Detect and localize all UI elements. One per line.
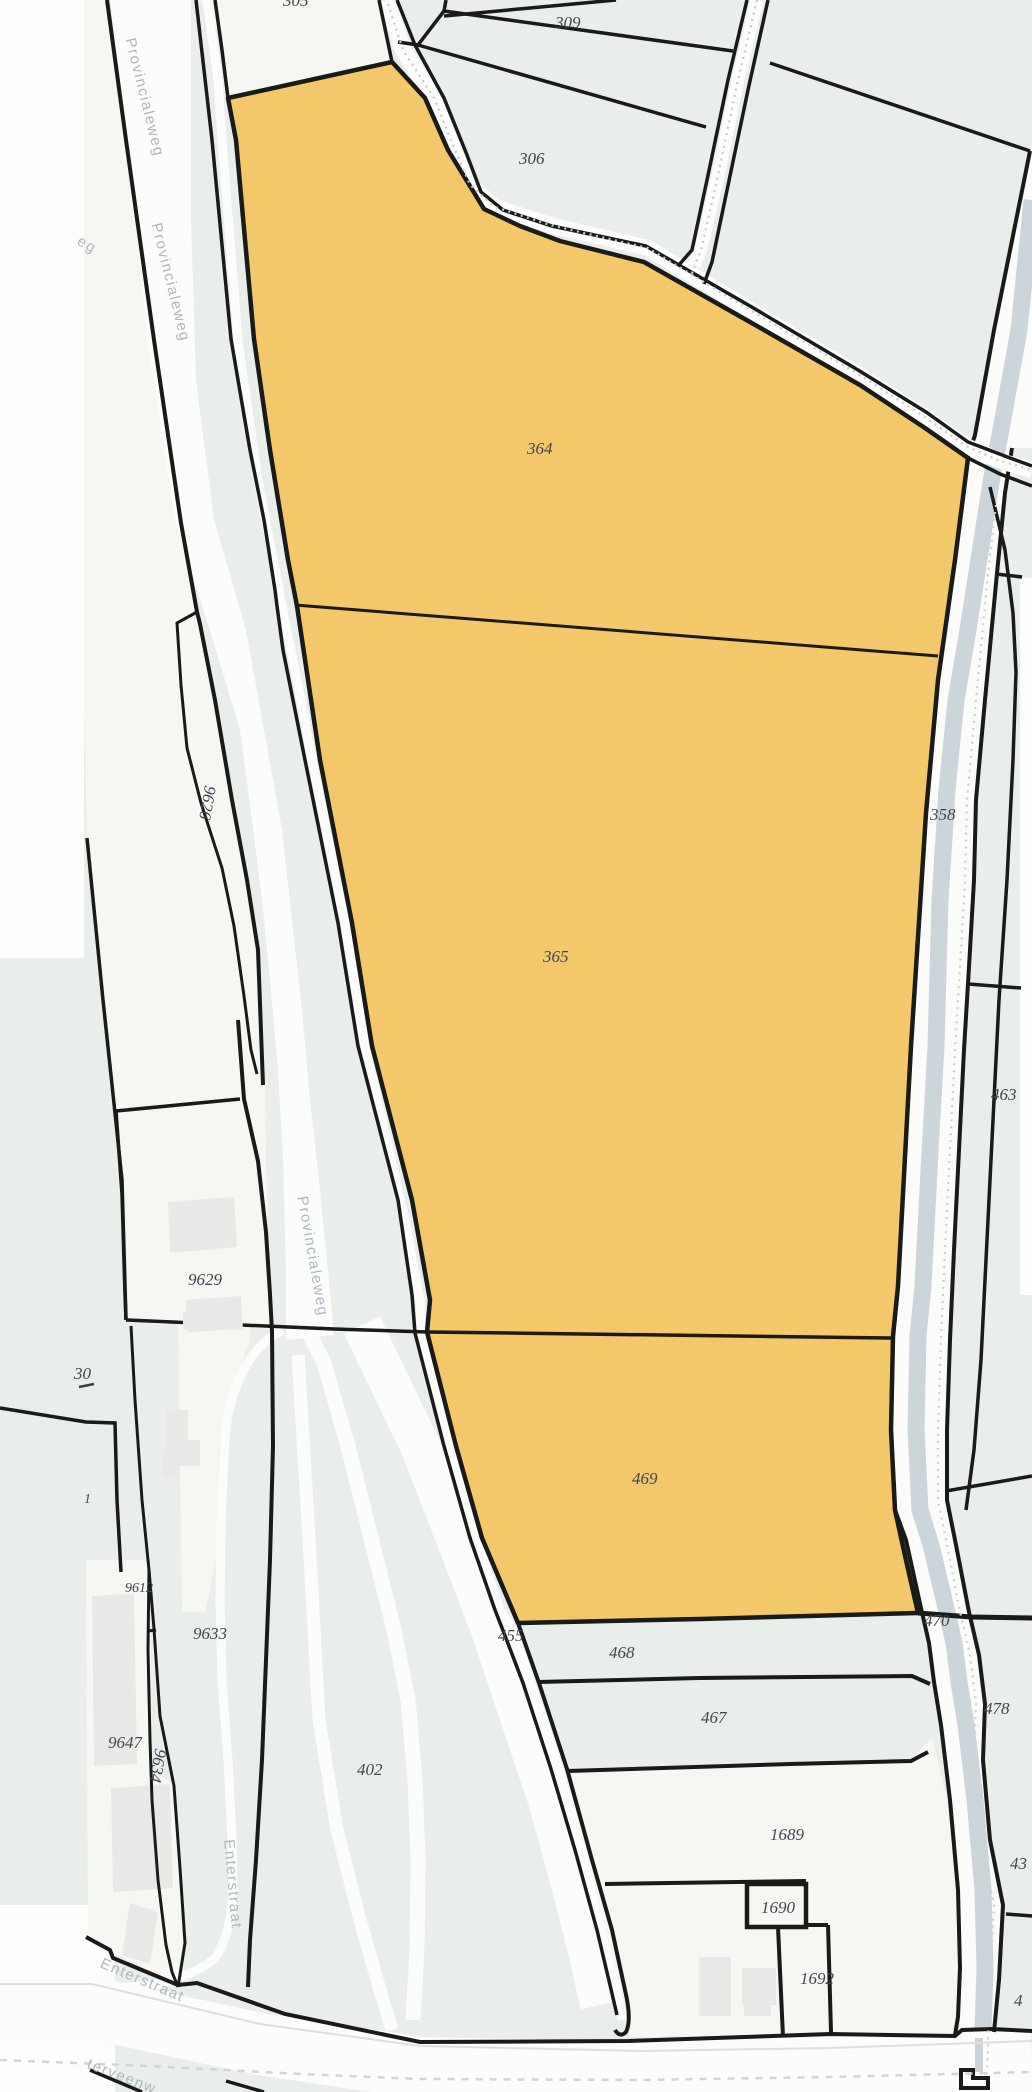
svg-text:305: 305 — [282, 0, 309, 10]
svg-text:4: 4 — [1014, 1991, 1023, 2010]
svg-text:469: 469 — [632, 1469, 658, 1488]
svg-text:9629: 9629 — [188, 1270, 223, 1289]
svg-text:306: 306 — [518, 149, 545, 168]
svg-text:463: 463 — [991, 1085, 1017, 1104]
svg-text:309: 309 — [554, 13, 581, 32]
svg-text:1: 1 — [84, 1492, 91, 1507]
svg-text:9633: 9633 — [193, 1624, 227, 1643]
svg-text:358: 358 — [929, 805, 956, 824]
svg-text:1689: 1689 — [770, 1825, 805, 1844]
svg-text:402: 402 — [357, 1760, 383, 1779]
svg-text:468: 468 — [609, 1643, 635, 1662]
svg-text:364: 364 — [526, 439, 553, 458]
svg-text:467: 467 — [701, 1708, 728, 1727]
svg-text:9647: 9647 — [108, 1733, 144, 1752]
svg-text:478: 478 — [984, 1699, 1010, 1718]
svg-text:470: 470 — [924, 1611, 950, 1630]
svg-text:43: 43 — [1010, 1854, 1027, 1873]
svg-text:365: 365 — [542, 947, 569, 966]
svg-text:455: 455 — [498, 1626, 524, 1645]
svg-text:1690: 1690 — [761, 1898, 796, 1917]
svg-text:30: 30 — [73, 1364, 92, 1383]
svg-text:1692: 1692 — [800, 1969, 835, 1988]
svg-text:9612: 9612 — [125, 1581, 153, 1596]
